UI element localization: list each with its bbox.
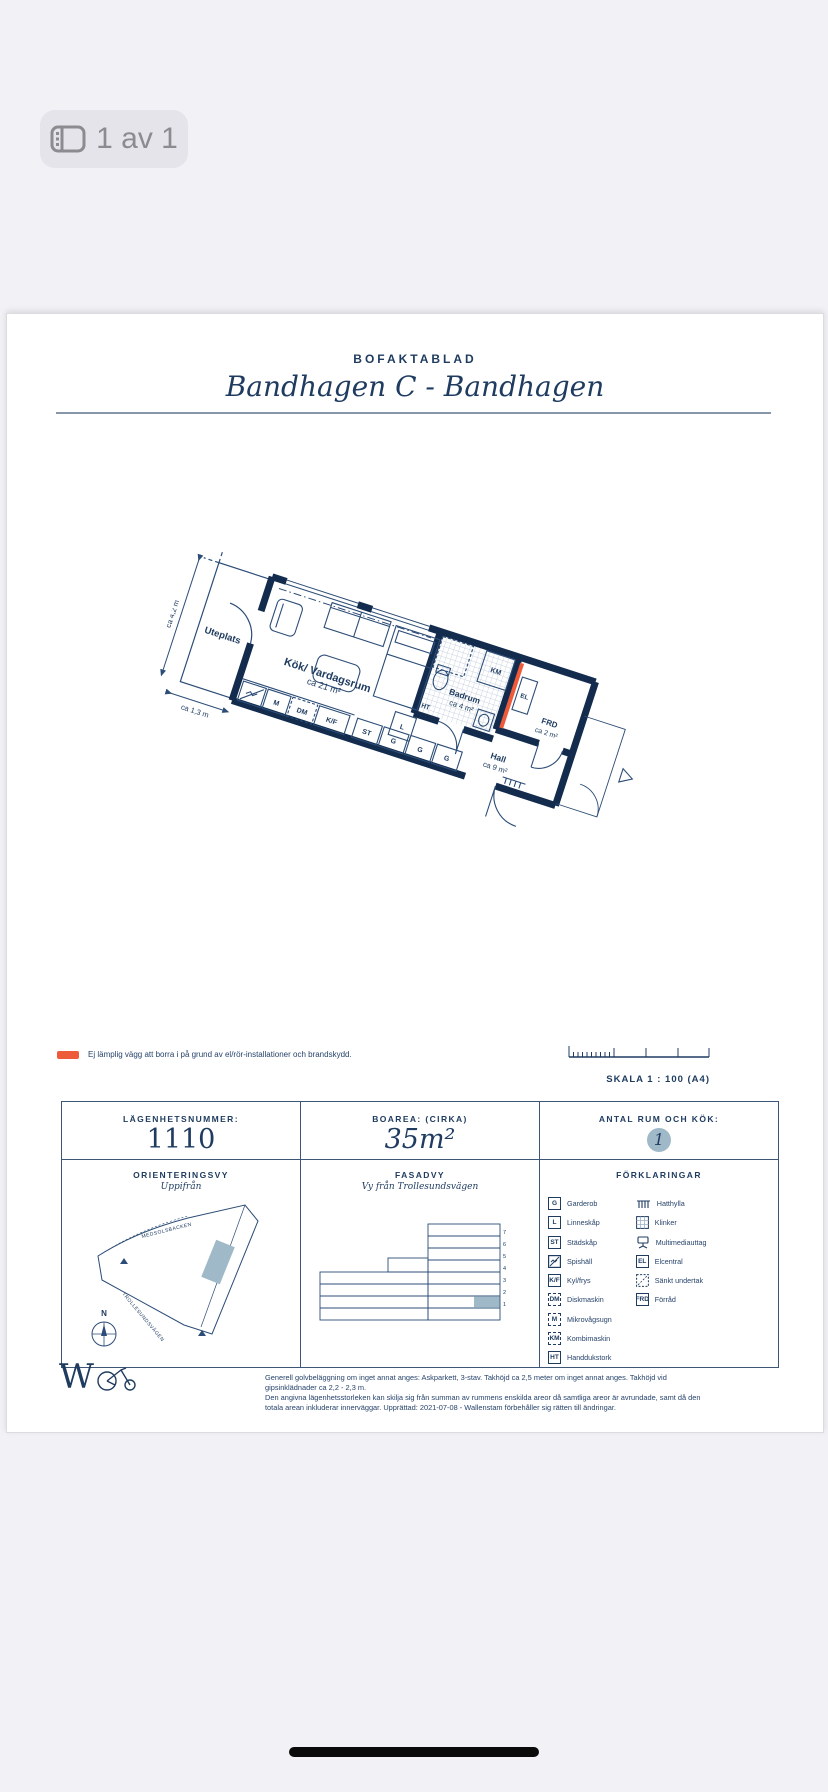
legend-item-label: Klinker <box>655 1218 677 1227</box>
home-indicator[interactable] <box>289 1747 539 1757</box>
legend-item: Multimediauttag <box>636 1236 707 1249</box>
floor-plan: Uteplats ca 4,2 m ca 1,3 m <box>136 530 673 875</box>
legend-item-label: Sänkt undertak <box>655 1276 703 1285</box>
boarea-value: 35m² <box>301 1124 539 1155</box>
legend-item: Spishäll <box>548 1255 612 1268</box>
legend-key-box: DM <box>548 1293 561 1306</box>
legend-item: ELElcentral <box>636 1255 707 1268</box>
svg-text:ST: ST <box>361 728 372 738</box>
legend-item: Hatthylla <box>636 1197 707 1210</box>
warning-color-swatch <box>57 1051 79 1059</box>
floor-number: 4 <box>503 1266 506 1272</box>
legend-item-label: Städskåp <box>567 1238 597 1247</box>
legend-item-label: Spishäll <box>567 1257 592 1266</box>
spishall-icon <box>548 1255 561 1268</box>
document-page: BOFAKTABLAD Bandhagen C - Bandhagen Utep… <box>6 313 824 1433</box>
legend-item-label: Kombimaskin <box>567 1334 610 1343</box>
legend-item-label: Förråd <box>655 1295 676 1304</box>
facade-sub: Vy från Trollesundsvägen <box>301 1182 539 1192</box>
floor-number: 5 <box>503 1254 506 1260</box>
legend-item-label: Garderob <box>567 1199 597 1208</box>
floor-number: 6 <box>503 1242 506 1248</box>
legend-item-label: Hatthylla <box>657 1199 685 1208</box>
legend-key-box: FRD <box>636 1293 649 1306</box>
legend-item: Sänkt undertak <box>636 1274 707 1287</box>
floor-number: 3 <box>503 1278 506 1284</box>
dimension-left-label: ca 4,2 m <box>164 599 181 629</box>
sankt-undertak-icon <box>636 1274 649 1287</box>
floor-number: 1 <box>503 1302 506 1308</box>
info-table: LÄGENHETSNUMMER: 1110 BOAREA: (CIRKA) 35… <box>61 1101 779 1368</box>
page-title: Bandhagen C - Bandhagen <box>7 370 823 403</box>
legend-key-box: KM <box>548 1332 561 1345</box>
legend-item-label: Mikrovågsugn <box>567 1315 612 1324</box>
table-divider <box>539 1102 540 1367</box>
klinker-icon <box>636 1216 649 1229</box>
legend-item: STStädskåp <box>548 1236 612 1249</box>
site-plan: MEDSOLSBACKEN TROLLESUNDSVÄGEN N <box>80 1194 280 1359</box>
svg-text:M: M <box>272 700 280 709</box>
compass-n-label: N <box>101 1309 107 1318</box>
svg-text:DM: DM <box>296 707 309 717</box>
footer-disclaimer: Generell golvbeläggning om inget annat a… <box>265 1373 717 1413</box>
scale-ruler <box>568 1044 710 1060</box>
facade-floor-numbers: 7654321 <box>503 1230 506 1308</box>
legend-item: FRDFörråd <box>636 1293 707 1306</box>
hatthylla-icon <box>636 1197 651 1210</box>
legend-key-box: K/F <box>548 1274 561 1287</box>
legend-item-label: Multimediauttag <box>656 1238 707 1247</box>
legend-item-label: Elcentral <box>655 1257 683 1266</box>
legend-item: GGarderob <box>548 1197 612 1210</box>
legend-item: KMKombimaskin <box>548 1332 612 1345</box>
svg-text:G: G <box>443 755 451 764</box>
warning-note: Ej lämplig vägg att borra i på grund av … <box>57 1050 352 1059</box>
bicycle-icon <box>94 1364 138 1392</box>
legend: GGarderobLLinneskåpSTStädskåpSpishällK/F… <box>548 1197 707 1364</box>
orientation-label: ORIENTERINGSVY <box>62 1170 300 1180</box>
legend-item: K/FKyl/frys <box>548 1274 612 1287</box>
legend-item-label: Linneskåp <box>567 1218 600 1227</box>
facade-view: 7654321 <box>310 1210 530 1350</box>
orientation-sub: Uppifrån <box>62 1182 300 1192</box>
floor-number: 7 <box>503 1230 506 1236</box>
legend-label: FÖRKLARINGAR <box>540 1170 778 1180</box>
svg-text:G: G <box>416 746 424 755</box>
legend-item-label: Kyl/frys <box>567 1276 591 1285</box>
room-count-badge: 1 <box>647 1128 671 1152</box>
footer-line-2: Den angivna lägenhetsstorleken kan skilj… <box>265 1393 717 1413</box>
room-count-label: ANTAL RUM OCH KÖK: <box>540 1114 778 1124</box>
compass: N <box>92 1309 116 1346</box>
legend-key-box: G <box>548 1197 561 1210</box>
street-bottom-label: TROLLESUNDSVÄGEN <box>120 1291 166 1343</box>
legend-item: HTHanddukstork <box>548 1351 612 1364</box>
svg-text:K/F: K/F <box>325 717 339 727</box>
thumbnails-icon <box>50 125 86 153</box>
warning-note-text: Ej lämplig vägg att borra i på grund av … <box>88 1050 352 1059</box>
page-indicator-pill[interactable]: 1 av 1 <box>40 110 188 168</box>
legend-item: DMDiskmaskin <box>548 1293 612 1306</box>
wallenstam-w: W <box>59 1362 94 1392</box>
legend-key-box: HT <box>548 1351 561 1364</box>
svg-text:L: L <box>399 724 406 732</box>
header-divider <box>56 412 771 414</box>
legend-key-box: L <box>548 1216 561 1229</box>
legend-key-box: EL <box>636 1255 649 1268</box>
legend-item: MMikrovågsugn <box>548 1313 612 1326</box>
svg-text:EL: EL <box>519 693 529 702</box>
table-divider <box>62 1159 778 1160</box>
apartment-number-label: LÄGENHETSNUMMER: <box>62 1114 300 1124</box>
walls <box>232 577 596 806</box>
legend-key-box: M <box>548 1313 561 1326</box>
boarea-label: BOAREA: (CIRKA) <box>301 1114 539 1124</box>
facade-label: FASADVY <box>301 1170 539 1180</box>
footer-line-1: Generell golvbeläggning om inget annat a… <box>265 1373 717 1393</box>
scale-label: SKALA 1 : 100 (A4) <box>467 1074 710 1085</box>
uteplats-label: Uteplats <box>203 625 242 647</box>
document-type: BOFAKTABLAD <box>7 352 823 366</box>
legend-item-label: Diskmaskin <box>567 1295 604 1304</box>
apartment-number-value: 1110 <box>62 1124 300 1155</box>
wallenstam-logo: W <box>59 1362 138 1392</box>
legend-key-box: ST <box>548 1236 561 1249</box>
legend-item: LLinneskåp <box>548 1216 612 1229</box>
unit-highlight <box>474 1297 500 1308</box>
multimedia-icon <box>636 1236 650 1249</box>
building-highlight <box>201 1240 235 1285</box>
page-indicator-label: 1 av 1 <box>96 122 178 156</box>
svg-text:G: G <box>389 738 397 747</box>
uteplats-terrace <box>165 545 275 698</box>
legend-item-label: Handdukstork <box>567 1353 611 1362</box>
floor-number: 2 <box>503 1290 506 1296</box>
legend-item: Klinker <box>636 1216 707 1229</box>
legend-column-right: HatthyllaKlinkerMultimediauttagELElcentr… <box>636 1197 707 1364</box>
legend-column-left: GGarderobLLinneskåpSTStädskåpSpishällK/F… <box>548 1197 612 1364</box>
